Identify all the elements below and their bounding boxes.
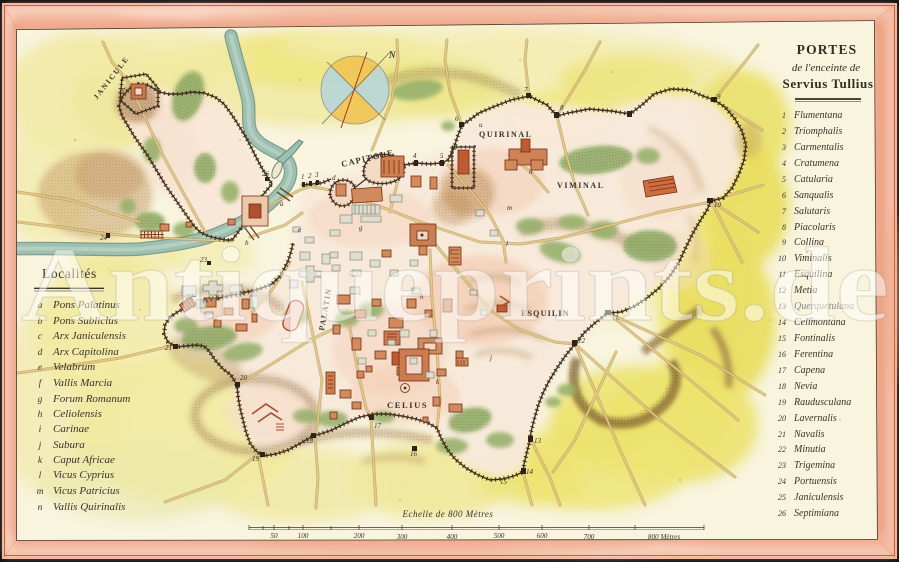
svg-text:Cratumena: Cratumena (794, 158, 839, 169)
svg-text:Navalis: Navalis (793, 429, 825, 440)
svg-text:a: a (280, 200, 284, 208)
svg-text:Vallis Marcia: Vallis Marcia (53, 377, 113, 389)
svg-text:Caput Africae: Caput Africae (53, 454, 115, 466)
svg-text:6: 6 (782, 191, 786, 200)
svg-text:20: 20 (778, 414, 786, 423)
svg-text:h: h (38, 410, 43, 420)
svg-text:4: 4 (782, 159, 786, 168)
svg-text:Janiculensis: Janiculensis (794, 492, 844, 503)
svg-text:Arx Capitolina: Arx Capitolina (52, 346, 119, 358)
svg-text:50: 50 (270, 532, 278, 540)
svg-text:1: 1 (301, 173, 305, 181)
svg-text:Septimiana: Septimiana (794, 508, 839, 519)
svg-text:17: 17 (374, 422, 382, 430)
svg-text:Antiqueprints.de: Antiqueprints.de (21, 226, 889, 343)
svg-text:100: 100 (298, 532, 309, 540)
svg-text:19: 19 (252, 455, 260, 463)
svg-text:16: 16 (410, 450, 418, 458)
svg-text:Sanqualis: Sanqualis (794, 190, 834, 201)
svg-text:Nevia: Nevia (793, 381, 817, 392)
svg-text:g: g (38, 395, 43, 405)
svg-text:QUIRINAL: QUIRINAL (479, 130, 533, 139)
svg-text:Subura: Subura (53, 439, 85, 451)
svg-text:u: u (479, 121, 483, 129)
svg-text:2: 2 (782, 127, 786, 136)
svg-text:Carinae: Carinae (53, 423, 89, 435)
svg-text:26: 26 (262, 170, 270, 178)
svg-text:CELIUS: CELIUS (387, 400, 428, 410)
svg-text:Salutaris: Salutaris (794, 206, 830, 217)
svg-text:m: m (37, 487, 44, 497)
svg-text:26: 26 (778, 509, 786, 518)
svg-text:Vallis Quirinalis: Vallis Quirinalis (53, 501, 125, 513)
svg-text:Catularia: Catularia (794, 174, 833, 185)
svg-text:5: 5 (440, 152, 444, 160)
svg-text:200: 200 (354, 532, 365, 540)
svg-text:17: 17 (778, 366, 787, 375)
svg-text:24: 24 (778, 477, 786, 486)
svg-text:13: 13 (534, 437, 542, 445)
svg-text:19: 19 (778, 398, 786, 407)
svg-text:VIMINAL: VIMINAL (557, 181, 605, 190)
svg-text:23: 23 (778, 461, 786, 470)
svg-text:d: d (38, 348, 43, 358)
svg-text:2: 2 (308, 172, 312, 180)
svg-text:Ferentina: Ferentina (793, 349, 833, 360)
svg-text:6: 6 (455, 115, 459, 123)
svg-text:500: 500 (494, 532, 505, 540)
svg-text:15: 15 (500, 478, 508, 486)
svg-text:Forum Romanum: Forum Romanum (52, 393, 130, 405)
svg-text:Servius Tullius: Servius Tullius (782, 76, 873, 91)
svg-text:3: 3 (314, 171, 319, 179)
svg-text:16: 16 (778, 350, 786, 359)
svg-text:600: 600 (537, 532, 548, 540)
svg-text:Portuensis: Portuensis (793, 476, 837, 487)
svg-text:Raudusculana: Raudusculana (793, 397, 851, 408)
svg-text:3: 3 (781, 143, 786, 152)
svg-text:Velabrum: Velabrum (53, 361, 95, 373)
svg-text:9: 9 (717, 93, 721, 101)
svg-text:22: 22 (778, 445, 786, 454)
svg-text:Flumentana: Flumentana (793, 110, 842, 121)
svg-text:21: 21 (165, 344, 172, 352)
svg-text:Celiolensis: Celiolensis (53, 408, 102, 420)
svg-text:PORTES: PORTES (797, 42, 858, 57)
svg-text:de l'enceinte de: de l'enceinte de (792, 62, 860, 74)
svg-text:1: 1 (782, 111, 786, 120)
svg-text:18: 18 (306, 437, 314, 445)
svg-text:14: 14 (526, 468, 534, 476)
svg-text:8: 8 (560, 104, 564, 112)
svg-text:l: l (39, 471, 42, 481)
svg-text:Lavernalis: Lavernalis (793, 413, 837, 424)
svg-text:5: 5 (782, 175, 786, 184)
svg-text:27: 27 (118, 87, 126, 95)
svg-text:20: 20 (240, 374, 248, 382)
svg-text:21: 21 (778, 430, 786, 439)
svg-text:n: n (529, 168, 533, 176)
svg-text:d: d (332, 174, 336, 182)
svg-text:Vicus Cyprius: Vicus Cyprius (53, 469, 114, 481)
svg-text:Capena: Capena (794, 365, 825, 376)
svg-text:4: 4 (413, 152, 417, 160)
svg-text:18: 18 (778, 382, 786, 391)
svg-text:25: 25 (778, 493, 786, 502)
svg-text:Triomphalis: Triomphalis (794, 126, 842, 137)
svg-text:Vicus Patricius: Vicus Patricius (53, 485, 120, 497)
svg-text:Carmentalis: Carmentalis (794, 142, 844, 153)
svg-text:m: m (507, 204, 512, 212)
svg-text:Echelle de 800 Mètres: Echelle de 800 Mètres (402, 509, 494, 519)
svg-text:n: n (38, 503, 43, 513)
svg-text:j: j (489, 354, 492, 362)
svg-text:Minutia: Minutia (793, 444, 826, 455)
svg-text:7: 7 (524, 86, 528, 94)
svg-text:e: e (38, 363, 42, 373)
svg-text:i: i (39, 425, 42, 435)
svg-text:N: N (388, 50, 396, 60)
svg-text:Trigemina: Trigemina (794, 460, 835, 471)
svg-text:10: 10 (714, 201, 722, 209)
